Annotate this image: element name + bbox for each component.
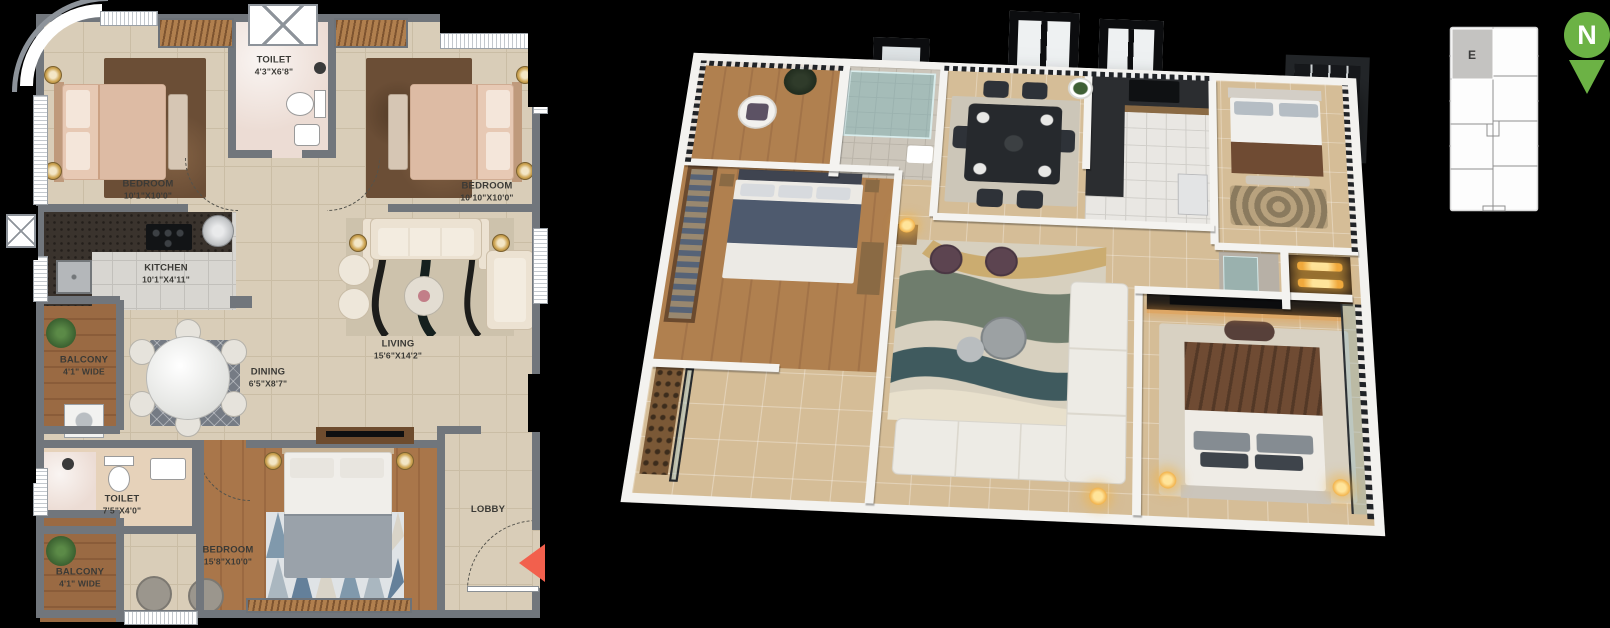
nightstand bbox=[719, 174, 735, 187]
room-label-living: LIVING15'6"X14'2" bbox=[374, 338, 422, 361]
wall bbox=[36, 440, 200, 448]
blanket bbox=[411, 85, 478, 179]
shaft bbox=[528, 374, 546, 432]
toilet-tank bbox=[104, 456, 134, 466]
blanket bbox=[98, 85, 165, 179]
cushion bbox=[745, 103, 769, 121]
bench bbox=[388, 94, 408, 170]
entry-door-leaf bbox=[467, 586, 539, 592]
room-label-bedroom-1: BEDROOM10'1"X10'0" bbox=[122, 178, 173, 201]
nightstand bbox=[865, 180, 880, 193]
washbasin bbox=[294, 124, 320, 146]
cooktop bbox=[146, 224, 192, 250]
pillow bbox=[1255, 454, 1304, 471]
table-lamp bbox=[264, 452, 282, 470]
rug bbox=[1230, 185, 1328, 228]
north-label: N bbox=[1577, 20, 1597, 51]
blanket bbox=[727, 199, 861, 248]
flowers bbox=[418, 290, 430, 302]
sofa bbox=[891, 418, 1087, 483]
wall bbox=[36, 526, 200, 534]
pillow bbox=[740, 183, 776, 197]
plant bbox=[46, 318, 76, 348]
dining-table bbox=[146, 336, 230, 420]
ottoman bbox=[1224, 320, 1275, 342]
door-arc bbox=[327, 158, 380, 211]
toilet-bowl bbox=[108, 466, 130, 492]
wall bbox=[388, 204, 540, 212]
window bbox=[100, 11, 158, 26]
wall bbox=[437, 426, 481, 434]
entry-arrow-icon bbox=[519, 544, 545, 582]
window bbox=[124, 611, 198, 625]
blanket bbox=[284, 514, 392, 578]
pillow bbox=[1200, 452, 1248, 469]
room-label-toilet-2: TOILET7'5"X4'0" bbox=[103, 493, 141, 516]
blanket bbox=[1184, 342, 1322, 416]
shower-head bbox=[62, 458, 74, 470]
appliance bbox=[1178, 173, 1208, 215]
dining-chair bbox=[1022, 82, 1048, 100]
pillow bbox=[1279, 103, 1319, 118]
dining-chair bbox=[1016, 190, 1043, 209]
washbasin bbox=[150, 458, 186, 480]
window bbox=[33, 95, 48, 205]
room-label-bedroom-3: BEDROOM15'8"X10'0" bbox=[202, 544, 253, 567]
pillow bbox=[340, 458, 384, 478]
pillow bbox=[1234, 101, 1273, 116]
table-lamp bbox=[492, 234, 510, 252]
key-plan: E bbox=[1449, 26, 1539, 212]
dining-table bbox=[964, 103, 1063, 184]
ottoman bbox=[338, 288, 370, 320]
key-plan-unit-label: E bbox=[1468, 48, 1476, 62]
tv bbox=[326, 431, 404, 437]
wall bbox=[36, 426, 120, 434]
pillow bbox=[486, 90, 510, 128]
wardrobe bbox=[158, 18, 234, 48]
shower-glass bbox=[843, 70, 937, 139]
duct bbox=[248, 4, 318, 46]
loveseat-cushion bbox=[494, 258, 526, 322]
sofa-cushions bbox=[378, 228, 474, 256]
pillow bbox=[290, 458, 334, 478]
pillow bbox=[66, 132, 90, 170]
floor-plan-3d bbox=[598, 0, 1428, 628]
kitchen-sink bbox=[56, 260, 92, 294]
wall bbox=[228, 150, 272, 158]
shaft bbox=[0, 443, 36, 483]
window bbox=[533, 228, 548, 304]
wall bbox=[302, 150, 336, 158]
wall bbox=[36, 204, 188, 212]
toilet-bowl bbox=[286, 92, 314, 116]
cooktop bbox=[1129, 79, 1180, 103]
floor-plan-2d: BEDROOM10'1"X10'0" TOILET4'3"X6'8" BEDRO… bbox=[0, 0, 560, 628]
plant bbox=[46, 536, 76, 566]
shower-head bbox=[314, 62, 326, 74]
curved-window bbox=[20, 4, 102, 86]
dresser bbox=[857, 242, 885, 295]
north-arrow-icon bbox=[1569, 60, 1605, 94]
dining-chair bbox=[983, 80, 1009, 98]
floor-plan-screenshot: BEDROOM10'1"X10'0" TOILET4'3"X6'8" BEDRO… bbox=[0, 0, 1610, 628]
pouf bbox=[188, 578, 224, 614]
blanket bbox=[1231, 142, 1324, 177]
wall bbox=[36, 296, 120, 304]
pillow bbox=[778, 185, 813, 199]
room-label-toilet-1: TOILET4'3"X6'8" bbox=[255, 54, 293, 77]
pillow bbox=[486, 132, 510, 170]
room-label-balcony-1: BALCONY4'1" WIDE bbox=[60, 354, 108, 377]
pillow bbox=[1256, 433, 1313, 454]
wall bbox=[116, 300, 124, 430]
ottoman bbox=[338, 254, 370, 286]
toilet-tank bbox=[314, 90, 326, 118]
room-label-lobby: LOBBY bbox=[471, 504, 505, 516]
wall bbox=[196, 440, 204, 618]
pouf bbox=[136, 576, 172, 612]
pillow bbox=[1194, 431, 1251, 452]
appliance-cylinder bbox=[202, 215, 234, 247]
room-label-bedroom-2: BEDROOM10'10"X10'0" bbox=[460, 180, 513, 203]
dining-chair bbox=[976, 188, 1003, 207]
wardrobe bbox=[246, 598, 412, 613]
room-label-dining: DINING6'5"X8'7" bbox=[249, 366, 287, 389]
pillow bbox=[816, 186, 851, 200]
window bbox=[33, 256, 48, 302]
room-label-balcony-2: BALCONY4'1" WIDE bbox=[56, 566, 104, 589]
north-indicator: N bbox=[1564, 12, 1610, 58]
sofa bbox=[1064, 281, 1128, 484]
wall bbox=[437, 430, 445, 618]
duct bbox=[6, 214, 36, 248]
door-arc bbox=[185, 158, 238, 211]
pillow bbox=[66, 90, 90, 128]
wall bbox=[230, 296, 252, 308]
table-lamp bbox=[1159, 471, 1177, 489]
wardrobe bbox=[334, 18, 408, 48]
table-lamp bbox=[396, 452, 414, 470]
washbasin bbox=[906, 145, 933, 163]
shaft bbox=[528, 33, 548, 107]
window bbox=[440, 33, 534, 49]
door-arc bbox=[197, 448, 250, 501]
table-lamp bbox=[349, 234, 367, 252]
room-label-kitchen: KITCHEN10'1"X4'11" bbox=[142, 262, 190, 285]
isometric-apartment bbox=[620, 53, 1385, 536]
void bbox=[440, 0, 548, 33]
